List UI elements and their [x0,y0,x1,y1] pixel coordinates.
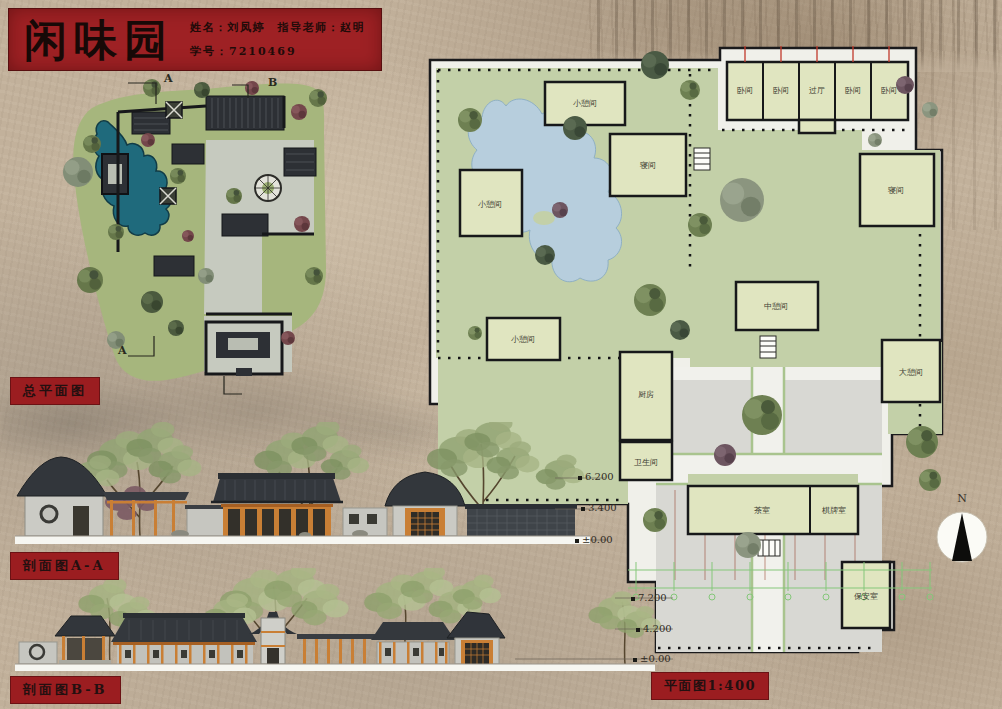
elevation-mark: 7.200 [631,592,667,603]
section-b-drawing: 7.2004.200±0.00 [15,568,675,676]
presentation-board: { "title_block": { "title": "闲味园", "name… [0,0,1002,709]
room-label: 保安室 [854,591,878,602]
student-name-line: 姓名：刘凤婷 指导老师：赵明 [190,20,365,35]
room-label: 卧间 [881,85,897,96]
room-label: 卧间 [737,85,753,96]
room-label: 棋牌室 [822,505,846,516]
section-a-drawing: 6.2003.400±0.00 [15,422,610,548]
elevation-mark: 3.400 [581,502,617,513]
room-label: 茶室 [754,505,770,516]
elevation-mark: ±0.00 [575,534,613,545]
section-cut-mark-a-top: A [164,72,173,85]
room-label: 过厅 [809,85,825,96]
elevation-mark: 6.200 [578,471,614,482]
room-label: 中憩间 [764,301,788,312]
section-cut-mark-a-bottom: A [118,344,127,357]
student-id-line: 学号：7210469 [190,44,297,59]
north-label: N [957,492,967,505]
room-label: 寝间 [640,160,656,171]
project-title: 闲味园 [24,12,174,68]
site-plan-label: 总平面图 [10,377,100,405]
room-label: 寝间 [888,185,904,196]
room-label: 大憩间 [899,367,923,378]
section-b-svg [15,568,675,676]
elevation-mark: 4.200 [636,623,672,634]
section-cut-mark-b-top: B [268,76,277,89]
north-arrow: N [930,492,994,570]
title-block: 闲味园 姓名：刘凤婷 指导老师：赵明 学号：7210469 [8,8,382,71]
room-label: 小憩间 [478,199,502,210]
north-arrow-icon [930,505,994,569]
section-b-label: 剖面图B-B [10,676,121,704]
plan-scale-label: 平面图1:400 [651,672,769,700]
site-plan [56,76,348,398]
section-a-label: 剖面图A-A [10,552,119,580]
room-label: 小憩间 [573,98,597,109]
room-label: 小憩间 [511,334,535,345]
site-plan-drawing [56,76,348,398]
room-label: 卫生间 [634,457,658,468]
room-label: 卧间 [845,85,861,96]
room-label: 厨房 [638,389,654,400]
room-label: 卧间 [773,85,789,96]
elevation-mark: ±0.00 [633,653,671,664]
section-a-svg [15,422,610,548]
